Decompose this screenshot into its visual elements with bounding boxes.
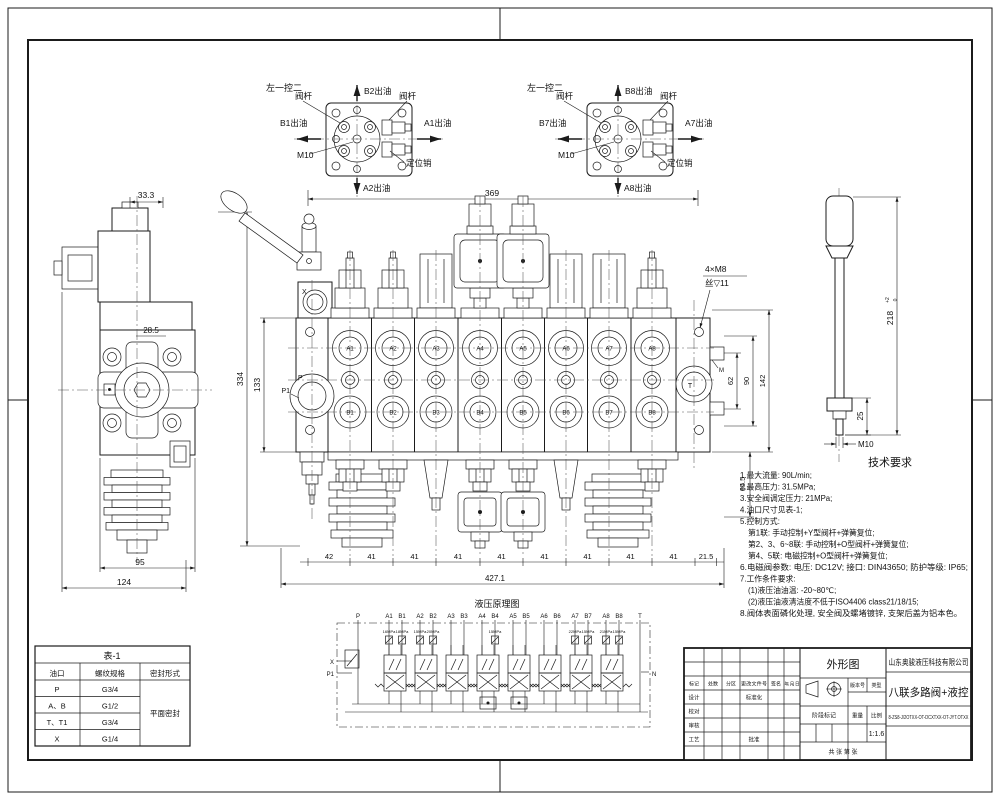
tb-part-number: 8-ZS8-J/2OTXX-OT-DCXTXX-OT-JYT.OTXX	[889, 715, 970, 721]
out-top-label: B2出油	[364, 86, 391, 96]
stem-label: 阀杆	[295, 91, 313, 101]
dim-chain-label: 41	[626, 552, 634, 561]
pressure-label: 21MPa	[600, 629, 613, 634]
table-cell: T、T1	[47, 718, 68, 727]
schematic-x-label: X	[330, 660, 334, 666]
port-b-label: B3	[432, 411, 440, 417]
tb-scale-value: 1:1.6	[869, 731, 885, 738]
thread-label: M10	[858, 440, 874, 449]
dim-label: 62	[726, 377, 735, 385]
schematic-port-label: A5	[509, 614, 517, 620]
pressure-label: 22MPa	[569, 629, 582, 634]
port-table: 表-1 油口 螺纹规格 密封形式 P G3/4 A、B G1/2 T、T1 G3…	[35, 646, 190, 746]
tb-label-stage: 阶段标记	[812, 712, 836, 720]
schematic-port-label: A4	[478, 614, 486, 620]
schematic-port-label: B8	[615, 614, 623, 620]
tech-line: 第1联: 手动控制+Y型阀杆+弹簧复位;	[748, 528, 875, 538]
schematic-port-label: A6	[540, 614, 548, 620]
tb-label-sign: 签名	[771, 681, 781, 688]
out-right-label: A7出油	[685, 118, 712, 128]
port-a-label: A5	[519, 347, 527, 353]
hydraulic-schematic: 液压原理图 P A1 B1 A2 B2 A3 B3 A4 B4 A5 B5 A6…	[327, 598, 657, 727]
thread-label: M10	[297, 150, 314, 160]
out-right-label: A1出油	[424, 118, 451, 128]
dim-chain-label: 41	[583, 552, 591, 561]
pressure-label: 15MPa	[414, 629, 427, 634]
table-cell: P	[54, 685, 59, 694]
table-cell: G1/2	[102, 702, 118, 711]
lever-detail: M10 25 218 +2 0	[824, 188, 901, 462]
tech-line: (1)液压油油温: -20~80℃;	[748, 585, 836, 595]
tb-label-doc: 更改文件号	[741, 681, 767, 688]
pin-label: 定位销	[406, 158, 432, 168]
tech-title: 技术要求	[868, 456, 912, 469]
dim-label: 334	[235, 372, 245, 386]
pressure-label: 15MPa	[582, 629, 595, 634]
top-view-right: 左一控二 B8出油 B7出油 A7出油 A8出油 阀杆 阀杆 M10 定位销	[527, 82, 712, 198]
cad-drawing: 左一控二 B2出油 B1出油 A1出油 A2出油 阀杆 阀杆 M10 定位销 左…	[0, 0, 1000, 800]
schematic-n-label: N	[652, 672, 656, 678]
main-view: A1 A2 A3 A4 A5 A6 A7 A8 B1 B2 B3 B4 B5 B…	[217, 186, 747, 556]
tech-line: 1.最大流量: 90L/min;	[740, 470, 812, 480]
tb-label-std: 标准化	[746, 694, 763, 702]
tb-label-zone: 分区	[726, 681, 736, 688]
dim-label: 369	[485, 188, 499, 198]
port-x-label: X	[302, 289, 307, 296]
dim-label: 28.5	[143, 326, 159, 335]
pressure-label: 16MPa	[383, 629, 396, 634]
tech-line: 2.最高压力: 31.5MPa;	[740, 482, 815, 492]
top-view-left: 左一控二 B2出油 B1出油 A1出油 A2出油 阀杆 阀杆 M10 定位销	[266, 82, 451, 198]
port-t-label: T	[688, 383, 693, 390]
port-a-label: A6	[562, 347, 570, 353]
out-left-label: B7出油	[539, 118, 566, 128]
schematic-port-label: A1	[385, 614, 393, 620]
port-b-label: B8	[648, 411, 656, 417]
tb-label-date: 年、月、日	[785, 681, 800, 688]
dim-chain-label: 42	[325, 552, 333, 561]
dim-chain-label: 41	[410, 552, 418, 561]
table-cell: G3/4	[102, 685, 118, 694]
port-a-label: A3	[432, 347, 440, 353]
table-cell: G3/4	[102, 718, 118, 727]
port-m-label: M	[719, 368, 724, 374]
tech-line: 5.控制方式:	[740, 516, 780, 526]
tb-label-sheets: 共 张 第 张	[828, 748, 857, 756]
pressure-label: 15MPa	[489, 629, 502, 634]
dim-label: 427.1	[485, 574, 506, 583]
tb-product: 八联多路阀+液控	[889, 685, 969, 699]
dim-label: 33.3	[138, 190, 155, 200]
col-header: 密封形式	[150, 668, 180, 678]
dim-tolerance: 0	[893, 298, 899, 301]
drawing-sheet: 左一控二 B2出油 B1出油 A1出油 A2出油 阀杆 阀杆 M10 定位销 左…	[0, 0, 1000, 800]
dim-chain-label: 41	[497, 552, 505, 561]
out-top-label: B8出油	[625, 86, 652, 96]
schematic-port-label: A3	[447, 614, 455, 620]
dim-label: 133	[252, 378, 262, 392]
tb-label-weight: 重量	[852, 712, 864, 720]
tb-company: 山东奥骏液压科技有限公司	[889, 657, 969, 667]
port-a-label: A8	[648, 347, 656, 353]
tb-label-audit: 审核	[688, 722, 700, 730]
pin-label: 定位销	[667, 158, 693, 168]
pressure-label: 15MPa	[613, 629, 626, 634]
schematic-port-label: A7	[571, 614, 579, 620]
schematic-p1-label: P1	[327, 672, 335, 678]
schematic-port-label: A8	[602, 614, 610, 620]
dim-label: 142	[758, 375, 767, 388]
dim-chain-label: 41	[540, 552, 548, 561]
dim-chain-label: 41	[367, 552, 375, 561]
dim-chain-label: 41	[454, 552, 462, 561]
tech-line: 7.工作条件要求:	[740, 574, 795, 584]
table-cell: A、B	[48, 702, 66, 711]
port-b-label: B1	[346, 411, 354, 417]
tech-line: 第4、5联: 电磁控制+O型阀杆+弹簧复位;	[748, 551, 888, 561]
dim-chain-label: 41	[669, 552, 677, 561]
out-left-label: B1出油	[280, 118, 307, 128]
tech-line: 4.油口尺寸见表-1;	[740, 505, 802, 515]
out-bottom-label: A2出油	[363, 183, 390, 193]
port-p1-label: P1	[281, 388, 290, 395]
tech-requirements: 技术要求 1.最大流量: 90L/min; 2.最高压力: 31.5MPa; 3…	[740, 456, 968, 618]
port-b-label: B6	[562, 411, 570, 417]
dim-tolerance: +2	[885, 297, 891, 303]
stem-label: 阀杆	[660, 91, 678, 101]
port-a-label: A2	[389, 347, 397, 353]
tb-label-type: 类型	[871, 682, 881, 689]
dim-label: 95	[135, 557, 145, 567]
bolt-note: 4×M8	[705, 264, 727, 274]
dim-chains: 42 41 41 41 41 41 41 41 41 21.5 427.1	[281, 548, 724, 588]
tb-drawing-title: 外形图	[827, 658, 860, 671]
dim-label: 90	[742, 377, 751, 385]
schematic-port-label: B5	[522, 614, 530, 620]
tb-label-craft: 工艺	[688, 737, 700, 744]
schematic-port-label: P	[356, 614, 360, 620]
schematic-port-label: B2	[429, 614, 437, 620]
schematic-port-label: B4	[491, 614, 499, 620]
dim-label: 218	[885, 311, 895, 325]
dim-334-133: 334 133	[218, 212, 300, 546]
pressure-label: 18MPa	[396, 629, 409, 634]
schematic-port-label: T	[638, 614, 642, 620]
tech-line: 3.安全阀调定压力: 21MPa;	[740, 493, 832, 503]
port-a-label: A4	[476, 347, 484, 353]
tb-label-qty: 处数	[708, 681, 718, 688]
tb-label-version: 版本号	[850, 682, 865, 689]
tech-line: 6.电磁阀参数: 电压: DC12V; 接口: DIN43650; 防护等级: …	[740, 562, 968, 572]
dim-label: 25	[856, 411, 865, 420]
out-bottom-label: A8出油	[624, 183, 651, 193]
stem-label: 阀杆	[556, 91, 574, 101]
tb-label-scale: 比例	[871, 712, 883, 720]
tech-line: 8.阀体表面磷化处理, 安全阀及螺堵镀锌, 支架后盖为铝本色。	[740, 608, 962, 618]
bolt-note-depth: 丝▽11	[705, 278, 729, 288]
port-a-label: A7	[605, 347, 613, 353]
table-cell: G1/4	[102, 735, 118, 744]
schematic-port-label: B3	[460, 614, 468, 620]
pressure-label: 20MPa	[427, 629, 440, 634]
schematic-port-label: B1	[398, 614, 406, 620]
port-b-label: B5	[519, 411, 527, 417]
thread-label: M10	[558, 150, 575, 160]
table-cell: X	[54, 735, 59, 744]
tech-line: (2)液压油液清洁度不低于ISO4406 class21/18/15;	[748, 597, 919, 607]
table-title: 表-1	[103, 650, 120, 661]
port-p-label: P	[298, 375, 303, 382]
table-cell: 平面密封	[150, 708, 180, 718]
tb-label-design: 设计	[688, 694, 700, 702]
side-view: 33.3 28.5 95 124	[54, 190, 212, 592]
stem-label: 阀杆	[399, 91, 417, 101]
col-header: 螺纹规格	[95, 668, 125, 678]
tb-label-approve: 批准	[748, 736, 760, 744]
schematic-port-label: B7	[584, 614, 592, 620]
dim-label: 124	[117, 577, 131, 587]
dim-chain-label: 21.5	[699, 552, 714, 561]
port-b-label: B7	[605, 411, 613, 417]
port-b-label: B2	[389, 411, 397, 417]
schematic-title: 液压原理图	[474, 598, 519, 609]
tech-line: 第2、3、6~8联: 手动控制+O型阀杆+弹簧复位;	[748, 539, 909, 549]
port-b-label: B4	[476, 411, 484, 417]
port-a-label: A1	[346, 347, 354, 353]
tb-label-mark: 标记	[689, 681, 699, 688]
title-block: 标记 处数 分区 更改文件号 签名 年、月、日 设计 标准化 校对 审核 工艺 …	[684, 648, 971, 760]
tb-label-check: 校对	[688, 708, 700, 716]
schematic-port-label: B6	[553, 614, 561, 620]
schematic-port-label: A2	[416, 614, 424, 620]
col-header: 油口	[50, 668, 65, 678]
